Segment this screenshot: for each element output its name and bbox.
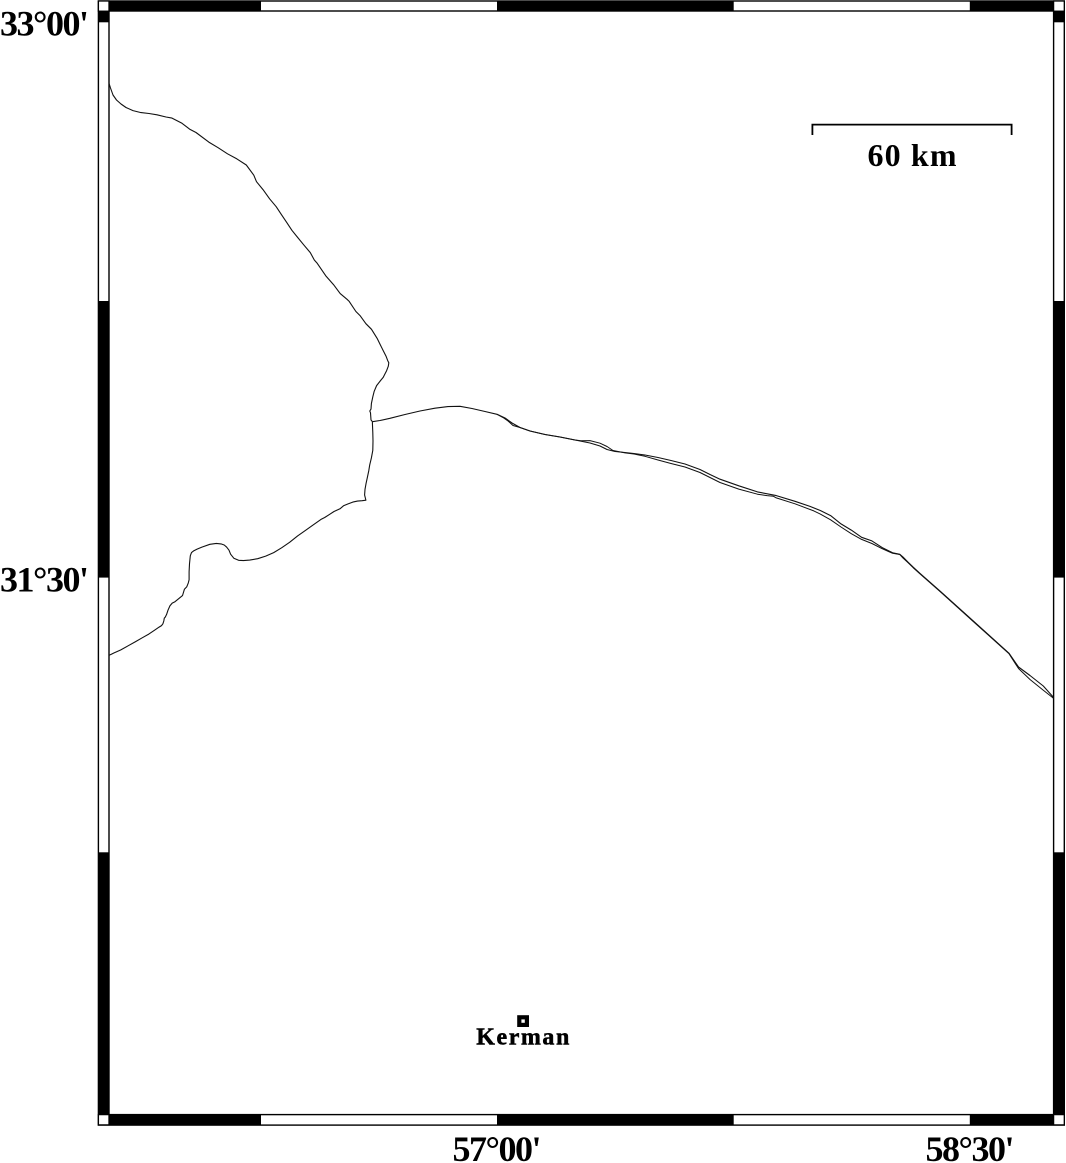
svg-text:60 km: 60 km: [868, 137, 957, 173]
svg-text:33°00': 33°00': [0, 4, 89, 44]
svg-text:58°30': 58°30': [926, 1129, 1015, 1163]
svg-text:Kerman: Kerman: [476, 1025, 569, 1051]
svg-text:31°30': 31°30': [0, 559, 89, 599]
svg-text:57°00': 57°00': [453, 1129, 542, 1163]
